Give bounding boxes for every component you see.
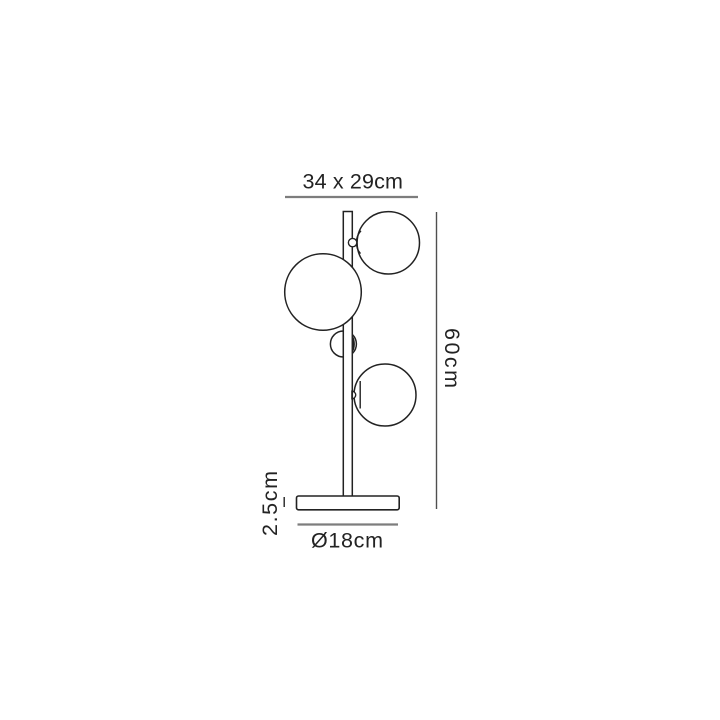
svg-text:Ø18cm: Ø18cm — [311, 529, 383, 553]
svg-text:60cm: 60cm — [440, 328, 464, 388]
svg-text:2.5cm: 2.5cm — [258, 471, 282, 536]
svg-text:34 x 29cm: 34 x 29cm — [302, 169, 403, 193]
